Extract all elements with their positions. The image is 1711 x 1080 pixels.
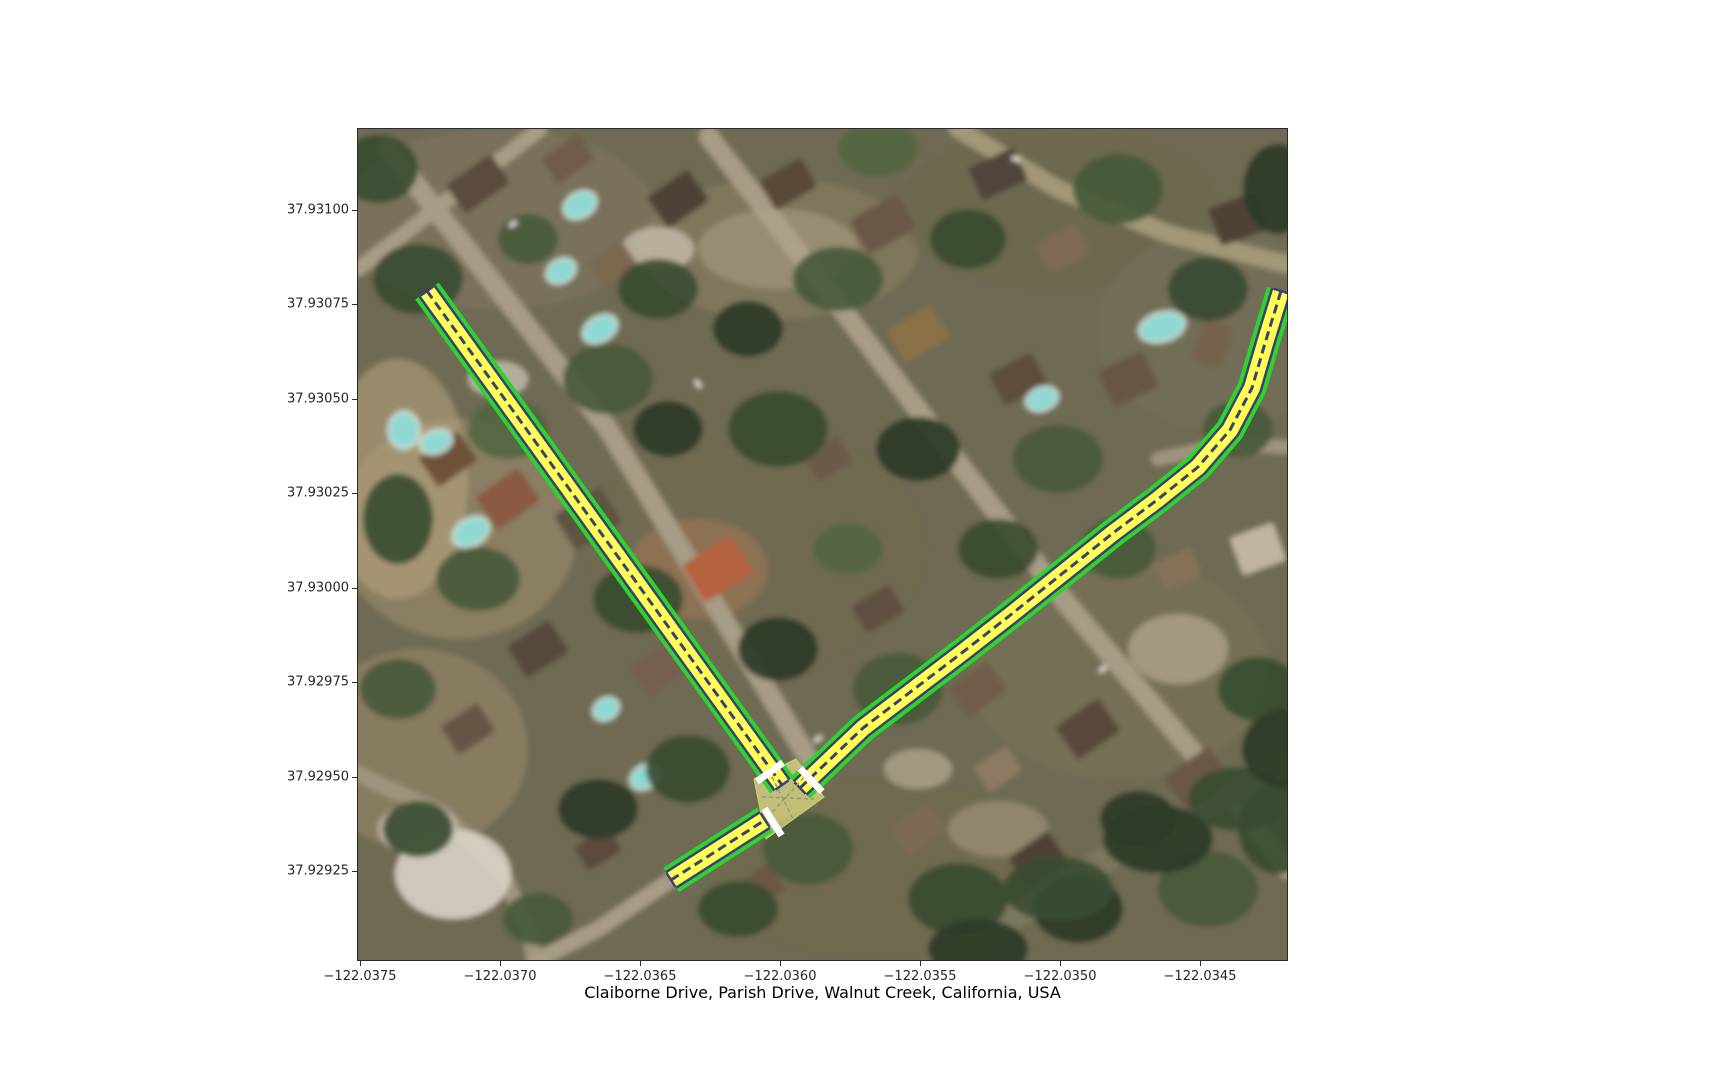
y-tick-mark bbox=[352, 588, 357, 589]
y-tick-label: 37.93000 bbox=[287, 581, 349, 596]
tree-canopy bbox=[930, 209, 1006, 269]
tree-canopy bbox=[363, 474, 433, 564]
x-tick-mark bbox=[780, 961, 781, 966]
x-tick-mark bbox=[500, 961, 501, 966]
y-tick-label: 37.93050 bbox=[287, 392, 349, 407]
x-tick-mark bbox=[640, 961, 641, 966]
tree-canopy bbox=[436, 547, 520, 611]
tree-canopy bbox=[698, 881, 778, 937]
tree-canopy bbox=[793, 247, 883, 311]
tree-canopy bbox=[1013, 425, 1103, 493]
tree-canopy bbox=[383, 801, 453, 857]
y-tick-label: 37.93075 bbox=[287, 297, 349, 312]
x-tick-mark bbox=[1200, 961, 1201, 966]
x-tick-label: −122.0355 bbox=[884, 969, 957, 984]
tree-canopy bbox=[958, 519, 1038, 579]
tree-canopy bbox=[1003, 857, 1113, 921]
tree-canopy bbox=[498, 214, 558, 264]
tree-canopy bbox=[713, 301, 783, 357]
tree-canopy bbox=[646, 735, 730, 803]
tree-canopy bbox=[618, 259, 698, 319]
tree-canopy bbox=[503, 893, 573, 945]
y-tick-mark bbox=[352, 493, 357, 494]
tree-canopy bbox=[563, 344, 653, 414]
x-tick-label: −122.0360 bbox=[744, 969, 817, 984]
satellite-background bbox=[358, 129, 1287, 960]
y-tick-mark bbox=[352, 871, 357, 872]
swimming-pool bbox=[390, 413, 418, 447]
x-tick-mark bbox=[920, 961, 921, 966]
y-tick-mark bbox=[352, 210, 357, 211]
tree-canopy bbox=[1168, 257, 1248, 321]
y-tick-mark bbox=[352, 304, 357, 305]
y-tick-mark bbox=[352, 399, 357, 400]
tree-canopy bbox=[633, 401, 703, 457]
tree-canopy bbox=[728, 391, 828, 467]
y-tick-label: 37.93025 bbox=[287, 486, 349, 501]
x-tick-mark bbox=[360, 961, 361, 966]
tree-canopy bbox=[876, 417, 960, 481]
tree-canopy bbox=[558, 779, 638, 839]
y-tick-mark bbox=[352, 682, 357, 683]
ground-patch bbox=[884, 749, 952, 789]
tree-canopy bbox=[813, 523, 883, 575]
ground-patch bbox=[1128, 614, 1228, 684]
y-tick-label: 37.93100 bbox=[287, 203, 349, 218]
y-tick-label: 37.92925 bbox=[287, 864, 349, 879]
figure: 37.9310037.9307537.9305037.9302537.93000… bbox=[0, 0, 1711, 1080]
map-axes bbox=[357, 128, 1288, 961]
figure-title: Claiborne Drive, Parish Drive, Walnut Cr… bbox=[358, 983, 1287, 1002]
x-tick-label: −122.0345 bbox=[1164, 969, 1237, 984]
satellite-map bbox=[358, 129, 1287, 960]
x-tick-label: −122.0350 bbox=[1024, 969, 1097, 984]
y-tick-label: 37.92950 bbox=[287, 770, 349, 785]
y-tick-mark bbox=[352, 777, 357, 778]
tree-canopy bbox=[1073, 154, 1163, 224]
y-tick-label: 37.92975 bbox=[287, 675, 349, 690]
tree-canopy bbox=[738, 617, 818, 681]
tree-canopy bbox=[360, 659, 436, 719]
x-tick-label: −122.0375 bbox=[324, 969, 397, 984]
x-tick-label: −122.0365 bbox=[604, 969, 677, 984]
x-tick-label: −122.0370 bbox=[464, 969, 537, 984]
x-tick-mark bbox=[1060, 961, 1061, 966]
